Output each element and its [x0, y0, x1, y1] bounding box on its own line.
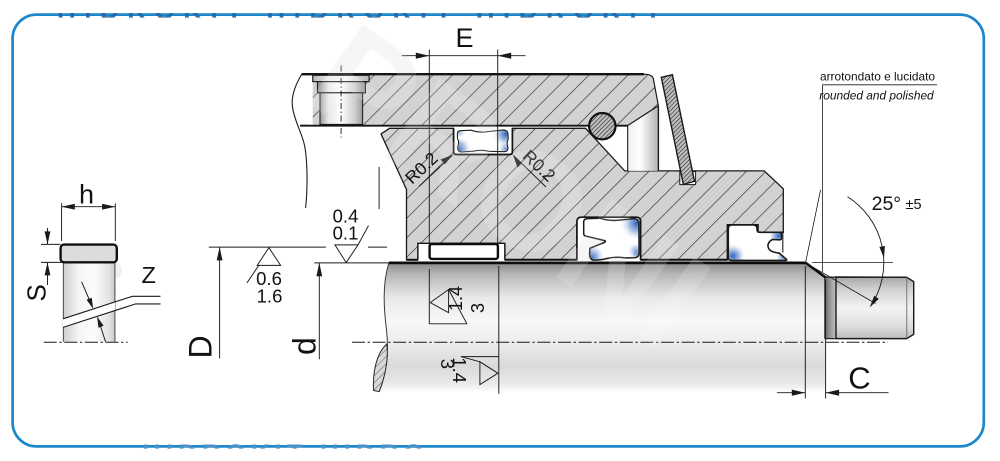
svg-text:D: D	[183, 335, 219, 358]
svg-text:1.6: 1.6	[257, 286, 283, 307]
svg-text:25°: 25°	[872, 193, 902, 215]
svg-text:C: C	[848, 361, 870, 396]
svg-text:1.4: 1.4	[449, 357, 470, 383]
svg-text:rounded and polished: rounded and polished	[819, 88, 934, 102]
svg-text:h: h	[79, 180, 94, 210]
svg-text:Z: Z	[142, 262, 156, 288]
svg-text:1.4: 1.4	[446, 286, 466, 311]
svg-text:3: 3	[468, 303, 488, 313]
svg-text:d: d	[287, 337, 323, 355]
svg-text:arrotondato e lucidato: arrotondato e lucidato	[820, 70, 935, 84]
svg-text:E: E	[455, 23, 473, 53]
svg-text:0.1: 0.1	[333, 223, 359, 244]
svg-text:±5: ±5	[906, 197, 922, 213]
svg-text:S: S	[22, 284, 52, 301]
